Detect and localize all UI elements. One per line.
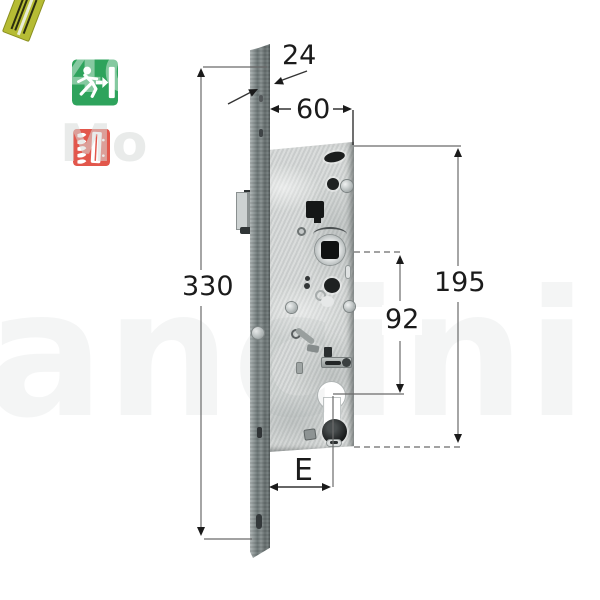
arrow-up [197, 68, 205, 77]
dim-label-case-depth: 60 [293, 95, 333, 125]
arrow-up [396, 255, 404, 264]
arrow-left [270, 105, 279, 113]
dimension-lines [0, 0, 600, 600]
arrow-down [197, 527, 205, 536]
arrow-up [454, 148, 462, 157]
arrow-down [396, 384, 404, 393]
dim-label-faceplate-height: 330 [179, 272, 237, 302]
dim-label-backset: E [291, 454, 316, 487]
product-technical-image: 4G Mo ancini [0, 0, 600, 600]
dim-label-faceplate-width: 24 [279, 41, 319, 71]
dim-label-handle-to-cylinder: 92 [382, 305, 422, 335]
dim-label-case-height: 195 [431, 268, 489, 298]
arrow-down [454, 434, 462, 443]
arrow-leader-24 [274, 77, 284, 85]
arrow-right [343, 105, 352, 113]
arrow-right [322, 483, 331, 491]
arrow-left [269, 483, 278, 491]
